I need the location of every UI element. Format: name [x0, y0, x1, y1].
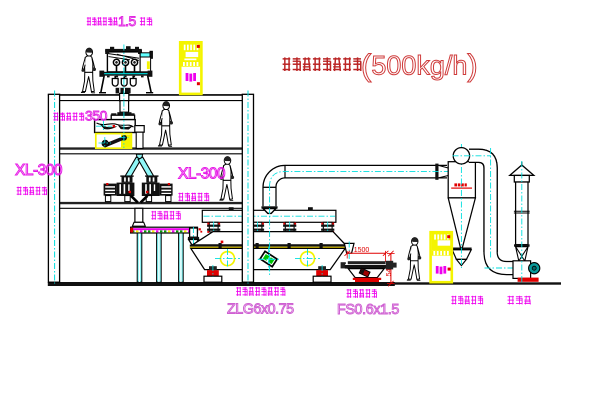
svg-text:1500: 1500: [354, 247, 370, 254]
svg-text:FS0.6x1.5: FS0.6x1.5: [337, 302, 399, 318]
svg-text:(500kg/h): (500kg/h): [361, 48, 478, 83]
svg-text:XL-300: XL-300: [15, 162, 63, 179]
svg-text:350: 350: [85, 108, 108, 124]
svg-text:ZLG6x0.75: ZLG6x0.75: [227, 302, 294, 318]
svg-text:1.5: 1.5: [118, 13, 136, 29]
svg-text:XL-300: XL-300: [178, 166, 226, 183]
